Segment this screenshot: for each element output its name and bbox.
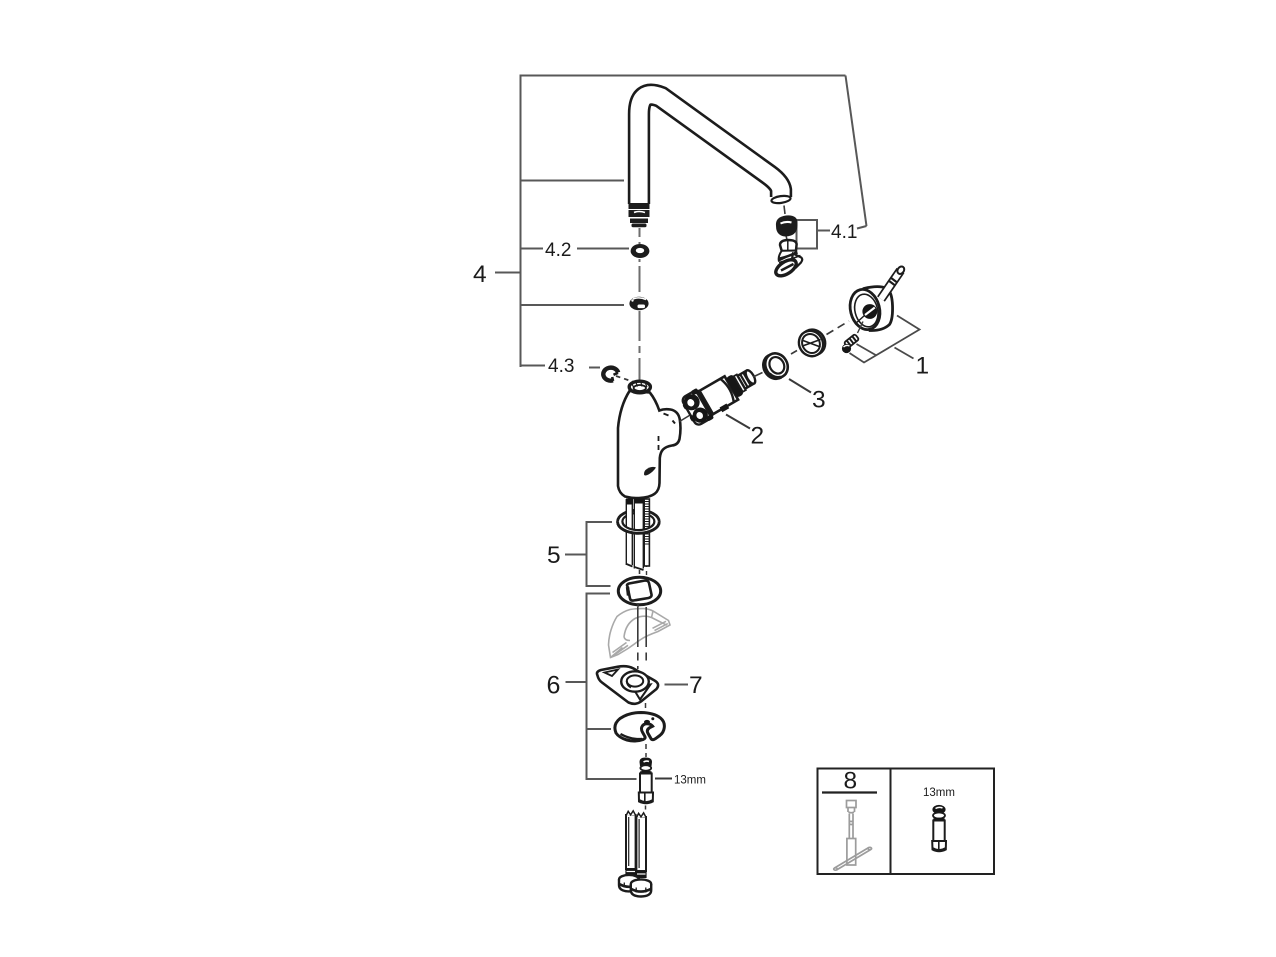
svg-text:4.2: 4.2 xyxy=(545,240,571,261)
svg-text:4: 4 xyxy=(473,261,487,288)
svg-text:6: 6 xyxy=(547,672,561,700)
svg-text:4.3: 4.3 xyxy=(548,356,574,377)
svg-text:4.1: 4.1 xyxy=(831,222,857,243)
svg-text:5: 5 xyxy=(547,542,561,569)
svg-text:1: 1 xyxy=(916,353,930,380)
svg-text:8: 8 xyxy=(844,768,858,795)
svg-text:13mm: 13mm xyxy=(674,775,706,787)
svg-text:2: 2 xyxy=(751,423,765,450)
svg-text:7: 7 xyxy=(689,672,703,699)
svg-text:13mm: 13mm xyxy=(923,787,955,799)
svg-text:3: 3 xyxy=(812,387,826,414)
